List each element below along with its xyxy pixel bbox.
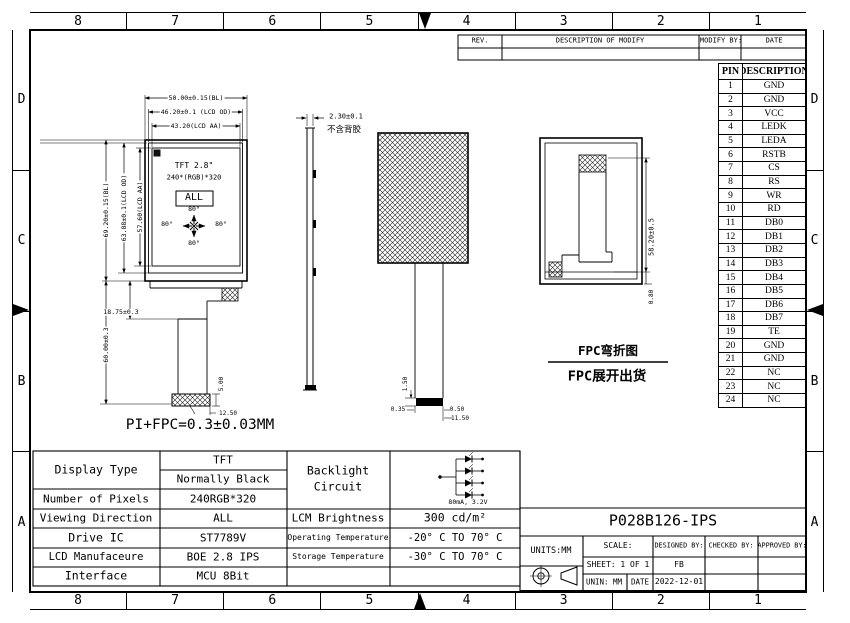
spec-value-interface: MCU 8Bit [197,571,250,582]
column-label: 3 [516,13,613,30]
storage-temp-value: -30° C TO 70° C [408,552,503,563]
pin-description: DB3 [742,257,805,271]
pin-number: 10 [719,202,742,216]
column-label: 2 [613,13,710,30]
pin-number: 16 [719,284,742,298]
pin-number: 11 [719,216,742,230]
spec-value-viewing: ALL [213,513,233,524]
fpc-caption-bend: FPC弯折图 [578,345,638,358]
angle-bottom: 80° [188,240,200,247]
pin-number: 8 [719,175,742,189]
model-number: P028B126-IPS [609,514,717,529]
pin-number: 24 [719,393,742,407]
row-label: D [806,30,823,171]
column-label: 7 [127,13,224,30]
dim-width-bl: 50.00±0.15(BL) [168,95,225,102]
middle-view [378,133,468,421]
column-label: 5 [321,13,418,30]
unit-label: UNIN: MM [586,578,622,586]
rev-header: REV. [472,38,489,45]
spec-value-pixels: 240RGB*320 [190,494,256,505]
brightness-value: 300 cd/m² [424,512,486,524]
pin-description: DB1 [742,229,805,243]
pin-number: 13 [719,243,742,257]
pin-description: RSTB [742,147,805,161]
column-label: 6 [224,13,321,30]
panel-type-label: TFT 2.8" [175,162,214,170]
pin-description: DB4 [742,270,805,284]
spec-label-manufacture: LCD Manufaceure [49,552,144,563]
rev-desc-header: DESCRIPTION OF MODIFY [556,38,645,45]
row-label: B [806,312,823,453]
dim-fpc-height: 58.20±0.5 [649,217,656,257]
dim-height-aa: 57.60(LCD AA) [137,181,144,234]
pin-number: 14 [719,257,742,271]
approved-by-label: APPROVED BY: [757,543,806,550]
border-row-strip-left: DCBA [12,30,30,592]
spec-value-manufacture: BOE 2.8 IPS [187,552,260,563]
engineering-drawing-sheet: 87654321 87654321 DCBA DCBA REV. DESCRIP… [0,0,850,623]
column-label: 1 [710,13,806,30]
spec-label-interface: Interface [65,570,127,582]
border-row-strip-right: DCBA [806,30,824,592]
dim-tail-width: 11.50 [451,416,469,422]
viewing-angle-cross [183,215,205,237]
dim-fpc-bottom: 0.80 [649,289,655,305]
fpc-stiffener [416,398,443,406]
brightness-label: LCM Brightness [292,513,385,524]
alignment-mark [154,150,161,157]
pin-number: 23 [719,379,742,393]
rev-date-header: DATE [766,38,783,45]
column-label: 8 [30,592,127,609]
column-label: 3 [516,592,613,609]
spec-label-drive-ic: Drive IC [68,532,123,544]
dim-stiffener-thickness: 1.50 [403,376,409,392]
pin-description: DB7 [742,311,805,325]
backlight-label-1: Backlight [307,465,369,477]
pin-description: NC [742,366,805,380]
row-label: B [13,312,30,453]
angle-right: 80° [215,221,227,228]
pin-description: NC [742,379,805,393]
fpc-caption-flat: FPC展开出货 [568,370,646,384]
spec-value-display-type-1: TFT [213,455,233,466]
side-view [296,114,324,390]
pin-description: DB0 [742,216,805,230]
pin-description: WR [742,188,805,202]
column-label: 5 [321,592,418,609]
column-label: 6 [224,592,321,609]
row-label: A [806,452,823,592]
storage-temp-label: Storage Temperature [292,553,384,561]
pin-description: CS [742,161,805,175]
pin-number: 15 [719,270,742,284]
column-label: 2 [613,592,710,609]
dim-tail-right: 0.50 [450,407,464,413]
pin-description: GND [742,93,805,107]
pin-description: DB2 [742,243,805,257]
operating-temp-label: Operating Temperature [287,534,388,542]
spec-label-viewing: Viewing Direction [40,513,153,524]
checked-by-label: CHECKED BY: [708,543,753,550]
pin-description: RS [742,175,805,189]
pin-number: 4 [719,120,742,134]
angle-top: 80° [188,206,200,213]
dim-width-aa: 43.20(LCD AA) [170,123,223,130]
spec-label-pixels: Number of Pixels [43,494,149,505]
column-label: 1 [710,592,806,609]
fpc-thickness-note: PI+FPC=0.3±0.03MM [126,418,274,433]
operating-temp-value: -20° C TO 70° C [408,533,503,544]
pin-number: 2 [719,93,742,107]
fpc-tail [150,281,242,415]
date-value: 2022-12-01 [655,578,703,586]
sheet-label: SHEET: 1 OF 1 [587,561,650,569]
pin-description: DB6 [742,298,805,312]
spec-value-drive-ic: ST7789V [200,533,246,544]
row-label: D [13,30,30,171]
dim-connector-height: 5.00 [219,376,225,392]
dim-height-bl: 69.20±0.15(BL) [103,182,110,239]
pin-header: PIN [719,64,742,79]
pin-description: VCC [742,106,805,120]
angle-left: 80° [161,221,173,228]
backlight-rating: 80mA, 3.2V [448,499,487,506]
projection-symbol [530,565,577,587]
pin-number: 20 [719,338,742,352]
designed-by-value: FB [674,561,684,569]
dim-tail-left: 0.35 [391,407,405,413]
pin-description: LEDK [742,120,805,134]
border-column-strip-top: 87654321 [30,12,806,30]
viewing-direction-label: ALL [185,193,203,203]
dim-width-od: 46.20±0.1 (LCD OD) [160,109,232,116]
dim-fpc-length: 60.00±0.3 [103,326,110,363]
pin-number: 6 [719,147,742,161]
backlight-circuit [438,452,484,499]
column-label: 4 [419,592,516,609]
front-view [40,95,247,415]
units-label: UNITS:MM [531,547,572,556]
row-label: A [13,452,30,592]
panel-resolution-label: 240*(RGB)*320 [167,175,222,182]
adhesive-note: 不含背胶 [327,126,361,135]
pin-description: GND [742,79,805,93]
spec-value-display-type-2: Normally Black [177,474,270,485]
pin-description: GND [742,338,805,352]
dim-fpc-offset: 18.75±0.3 [102,309,139,316]
pin-number: 1 [719,79,742,93]
pin-number: 7 [719,161,742,175]
pin-number: 5 [719,134,742,148]
pin-description: DB5 [742,284,805,298]
row-label: C [13,171,30,312]
pin-number: 12 [719,229,742,243]
spec-label-display-type: Display Type [54,464,137,476]
scale-label: SCALE: [604,542,633,550]
row-label: C [806,171,823,312]
pin-number: 18 [719,311,742,325]
designed-by-label: DESIGNED BY: [654,543,703,550]
pin-number: 22 [719,366,742,380]
column-label: 8 [30,13,127,30]
pin-description: NC [742,393,805,407]
pin-description: TE [742,325,805,339]
column-label: 7 [127,592,224,609]
backlight-label-2: Circuit [314,481,362,493]
pin-number: 17 [719,298,742,312]
dim-height-od: 63.88±0.1(LCD OD) [121,174,128,243]
rev-by-header: MODIFY BY: [700,38,742,45]
pin-description: RD [742,202,805,216]
dim-thickness: 2.30±0.1 [329,114,363,121]
date-label: DATE [631,578,649,586]
column-label: 4 [419,13,516,30]
border-column-strip-bottom: 87654321 [30,592,806,610]
pin-number: 9 [719,188,742,202]
pin-table: PIN DESCRIPTION 1GND2GND3VCC4LEDK5LEDA6R… [718,63,806,408]
pin-desc-header: DESCRIPTION [742,64,805,79]
pin-number: 3 [719,106,742,120]
pin-description: GND [742,352,805,366]
pin-number: 19 [719,325,742,339]
pin-number: 21 [719,352,742,366]
pin-description: LEDA [742,134,805,148]
